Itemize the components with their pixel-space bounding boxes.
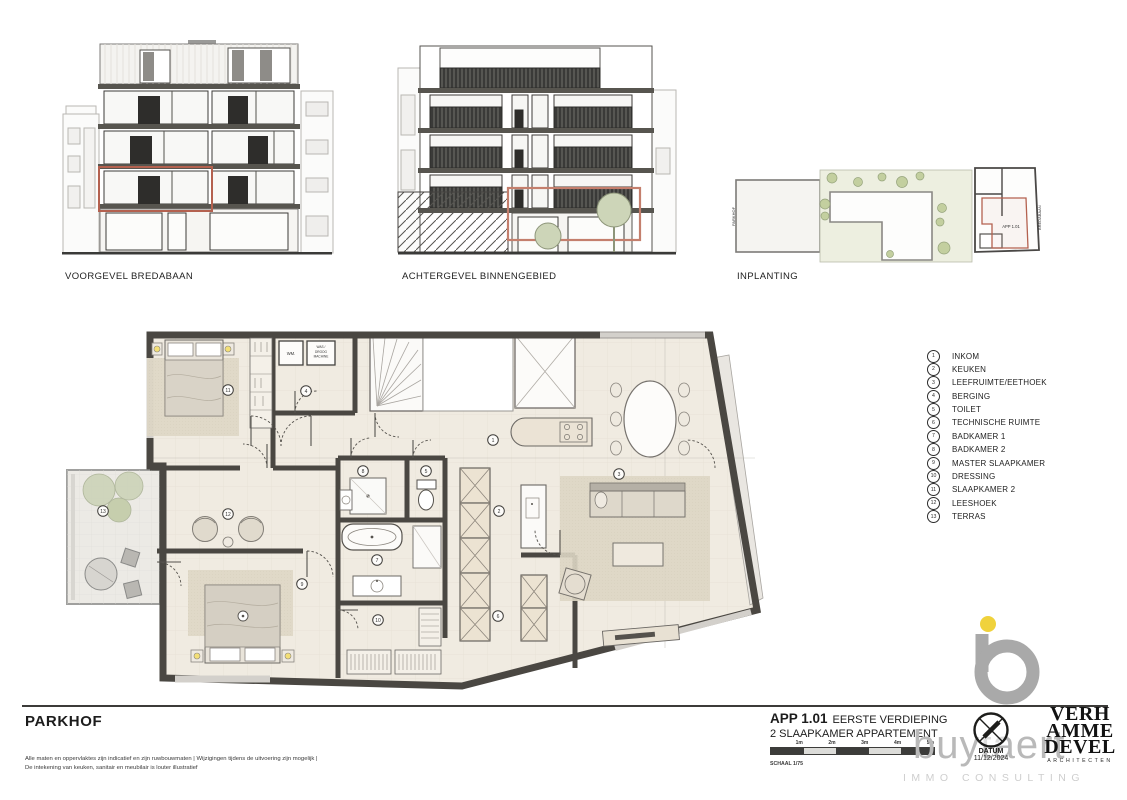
legend-item-label: INKOM [952, 352, 979, 361]
architect-logo: VERH AMME DEVEL ARCHITECTEN [1040, 706, 1120, 764]
legend-item-label: BADKAMER 1 [952, 432, 1006, 441]
scale-tick-label: 1m [770, 740, 803, 746]
room-marker-number-8: 8 [362, 469, 365, 475]
legend-item: 13 TERRAS [927, 512, 1097, 522]
front-neighbor-left [63, 106, 99, 253]
rear-facade [398, 46, 676, 255]
legend-item: 12 LEESHOEK [927, 498, 1097, 508]
rear-roof-hatch [398, 192, 508, 252]
wash-label-2: DROOG [315, 350, 328, 354]
elevator-shaft [515, 335, 575, 408]
scale-ticks: 1m2m3m4m5m [770, 740, 934, 746]
legend-item-label: LEESHOEK [952, 499, 997, 508]
terrace [67, 470, 160, 604]
room-marker-number-10: 10 [375, 618, 381, 624]
legend-item-label: LEEFRUIMTE/EETHOEK [952, 378, 1047, 387]
datum-block: DATUM 11/12/2024 [968, 748, 1014, 762]
architect-subtitle: ARCHITECTEN [1040, 758, 1120, 764]
datum-label: DATUM [968, 748, 1014, 755]
scale-bar [770, 747, 935, 755]
legend-item-label: KEUKEN [952, 365, 986, 374]
legend-item: 11 SLAAPKAMER 2 [927, 485, 1097, 495]
wash-label-3: MACHINE [314, 355, 329, 359]
room-marker-number-13: 13 [100, 509, 106, 515]
legend-item-label: TERRAS [952, 512, 986, 521]
legend-number-badge: 2 [927, 363, 940, 376]
wm-label: WM. [287, 351, 296, 356]
plan-sheet: APP 1.01 PARKHOF BREDABAAN VOORGEVEL BRE… [0, 0, 1127, 800]
legend-item: 3 LEEFRUIMTE/EETHOEK [927, 378, 1097, 388]
bedroom2 [147, 338, 272, 436]
wash-label-1: WAS / [317, 345, 326, 349]
room-marker-number-3: 3 [618, 472, 621, 478]
broker-b-logo [948, 610, 1052, 714]
legend-number-badge: 11 [927, 483, 940, 496]
site-buildings: APP 1.01 PARKHOF BREDABAAN [731, 168, 1042, 262]
room-marker-number-2: 2 [498, 509, 501, 515]
floor-plan-drawing: WM. WAS / DROOG MACHINE [55, 318, 770, 703]
legend-number-badge: 8 [927, 443, 940, 456]
site-plan-drawing: APP 1.01 PARKHOF BREDABAAN [730, 164, 1045, 269]
legend-item-label: TOILET [952, 405, 981, 414]
front-facade [62, 40, 332, 255]
datum-value: 11/12/2024 [968, 755, 1014, 762]
room-marker-number-7: 7 [376, 558, 379, 564]
legend-item: 6 TECHNISCHE RUIMTE [927, 418, 1097, 428]
legend-number-badge: 4 [927, 390, 940, 403]
room-marker-number-4: 4 [305, 389, 308, 395]
legend-number-badge: 10 [927, 470, 940, 483]
legend-item: 9 MASTER SLAAPKAMER [927, 458, 1097, 468]
legend-number-badge: 12 [927, 497, 940, 510]
lightwell [423, 335, 513, 411]
room-marker-number-6: 6 [497, 614, 500, 620]
architect-line-3: DEVEL [1040, 739, 1120, 756]
footer-divider [22, 705, 1108, 707]
legend-item: 10 DRESSING [927, 471, 1097, 481]
legend-item: 4 BERGING [927, 391, 1097, 401]
legend-number-badge: 5 [927, 403, 940, 416]
legend-item-label: MASTER SLAAPKAMER [952, 459, 1045, 468]
apartment-code: APP 1.01 [770, 711, 828, 726]
site-street-right-label: BREDABAAN [1037, 205, 1042, 230]
disclaimer-line-1: Alle maten en oppervlaktes zijn indicati… [25, 755, 318, 764]
scale-tick-label: 3m [836, 740, 869, 746]
room-marker-number-12: 12 [225, 512, 231, 518]
legend: 1 INKOM 2 KEUKEN 3 LEEFRUIMTE/EETHOEK 4 … [927, 351, 1097, 522]
legend-item-label: SLAAPKAMER 2 [952, 485, 1015, 494]
scale-tick-label: 2m [803, 740, 836, 746]
legend-item: 1 INKOM [927, 351, 1097, 361]
legend-item: 7 BADKAMER 1 [927, 431, 1097, 441]
datum-stamp-icon [971, 711, 1011, 751]
legend-item: 5 TOILET [927, 405, 1097, 415]
legend-number-badge: 1 [927, 350, 940, 363]
legend-number-badge: 3 [927, 376, 940, 389]
room-marker-number-1: 1 [492, 438, 495, 444]
room-marker-number-5: 5 [425, 469, 428, 475]
legend-item: 2 KEUKEN [927, 364, 1097, 374]
site-street-left-label: PARKHOF [731, 206, 736, 226]
storage-appliances: WM. WAS / DROOG MACHINE [279, 341, 335, 365]
rear-elevation-label: ACHTERGEVEL BINNENGEBIED [402, 271, 556, 282]
logo-yellow-dot [980, 616, 996, 632]
broker-tagline: IMMO CONSULTING [903, 772, 1085, 784]
room-marker-number-11: 11 [225, 388, 230, 394]
scale-label: SCHAAL 1/75 [770, 761, 803, 767]
legend-number-badge: 7 [927, 430, 940, 443]
legend-number-badge: 9 [927, 457, 940, 470]
disclaimer-text: Alle maten en oppervlaktes zijn indicati… [25, 755, 318, 773]
front-elevation-drawing [60, 36, 336, 266]
scale-tick-label: 4m [868, 740, 901, 746]
legend-item: 8 BADKAMER 2 [927, 445, 1097, 455]
disclaimer-line-2: De intekening van keuken, sanitair en me… [25, 764, 318, 773]
front-neighbor-right [301, 91, 333, 253]
legend-number-badge: 13 [927, 510, 940, 523]
room-marker-number-9: 9 [301, 582, 304, 588]
stairwell [370, 335, 423, 411]
legend-item-label: BADKAMER 2 [952, 445, 1006, 454]
project-title: PARKHOF [25, 713, 102, 730]
legend-number-badge: 6 [927, 416, 940, 429]
rear-elevation-drawing [396, 40, 678, 266]
site-apartment-tag: APP 1.01 [1002, 224, 1020, 229]
site-plan-label: INPLANTING [737, 271, 798, 282]
legend-item-label: DRESSING [952, 472, 995, 481]
legend-item-label: BERGING [952, 392, 990, 401]
front-elevation-label: VOORGEVEL BREDABAAN [65, 271, 193, 282]
legend-item-label: TECHNISCHE RUIMTE [952, 418, 1040, 427]
